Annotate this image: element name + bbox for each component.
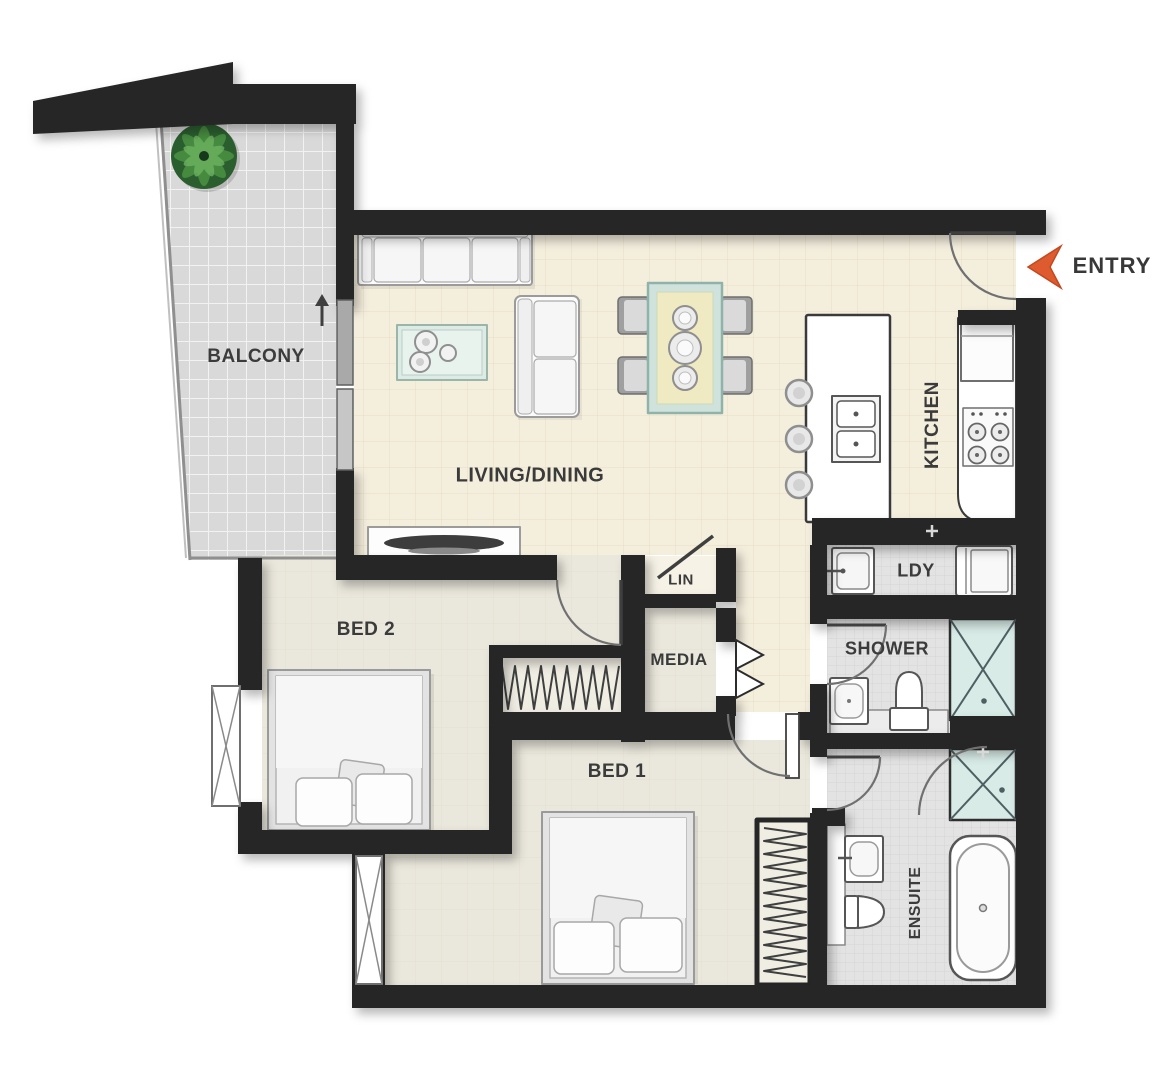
ensuite-toilet-icon [845,896,884,928]
room-label-balcony: BALCONY [207,346,304,368]
ensuite-shower-stall-icon [950,749,1016,820]
armchair [515,296,582,420]
shower-stall-icon [950,619,1016,720]
bed-1 [542,812,698,984]
ensuite-vanity [827,824,845,945]
ensuite-basin-icon [838,836,883,882]
kitchen-counter [958,318,1016,522]
island-sink-icon [832,396,880,462]
bed-2 [268,670,434,834]
bed1-window [356,856,382,984]
washing-machine-icon [956,546,1012,596]
right-wall [1016,298,1046,1008]
balcony-right-wall [336,84,354,306]
shower-basin-icon [830,678,868,724]
top-wall [336,210,1046,235]
room-label-bed2: BED 2 [337,619,395,641]
entry-label: ENTRY [1073,253,1152,279]
room-label-ensuite: ENSUITE [907,867,925,940]
bathtub-icon [950,836,1016,980]
room-label-living-dining: LIVING/DINING [456,465,605,488]
room-label-shower: SHOWER [845,639,929,660]
floor-plan: BALCONY LIVING/DINING KITCHEN LDY LIN ME… [0,0,1160,1086]
awning-wall [33,62,233,134]
room-label-laundry: LDY [897,561,935,582]
dining-table [648,283,722,413]
fridge-icon [961,321,1013,381]
entry-arrow-icon [1028,246,1061,288]
room-label-linen: LIN [668,572,694,589]
bed1-wardrobe [757,820,810,985]
island-stools [786,380,812,498]
room-label-bed1: BED 1 [588,761,646,783]
kitchen-island [806,315,890,522]
tv-unit [368,527,520,557]
coffee-table [397,325,487,380]
bottom-wall [352,985,1046,1008]
balcony-sliding-door [337,300,353,470]
room-label-kitchen: KITCHEN [922,381,944,469]
laundry-tub-icon [824,548,874,594]
room-label-media: MEDIA [650,650,707,670]
cooktop-icon [963,408,1013,466]
floor-plan-drawing [0,0,1160,1086]
bed2-window [212,686,240,806]
